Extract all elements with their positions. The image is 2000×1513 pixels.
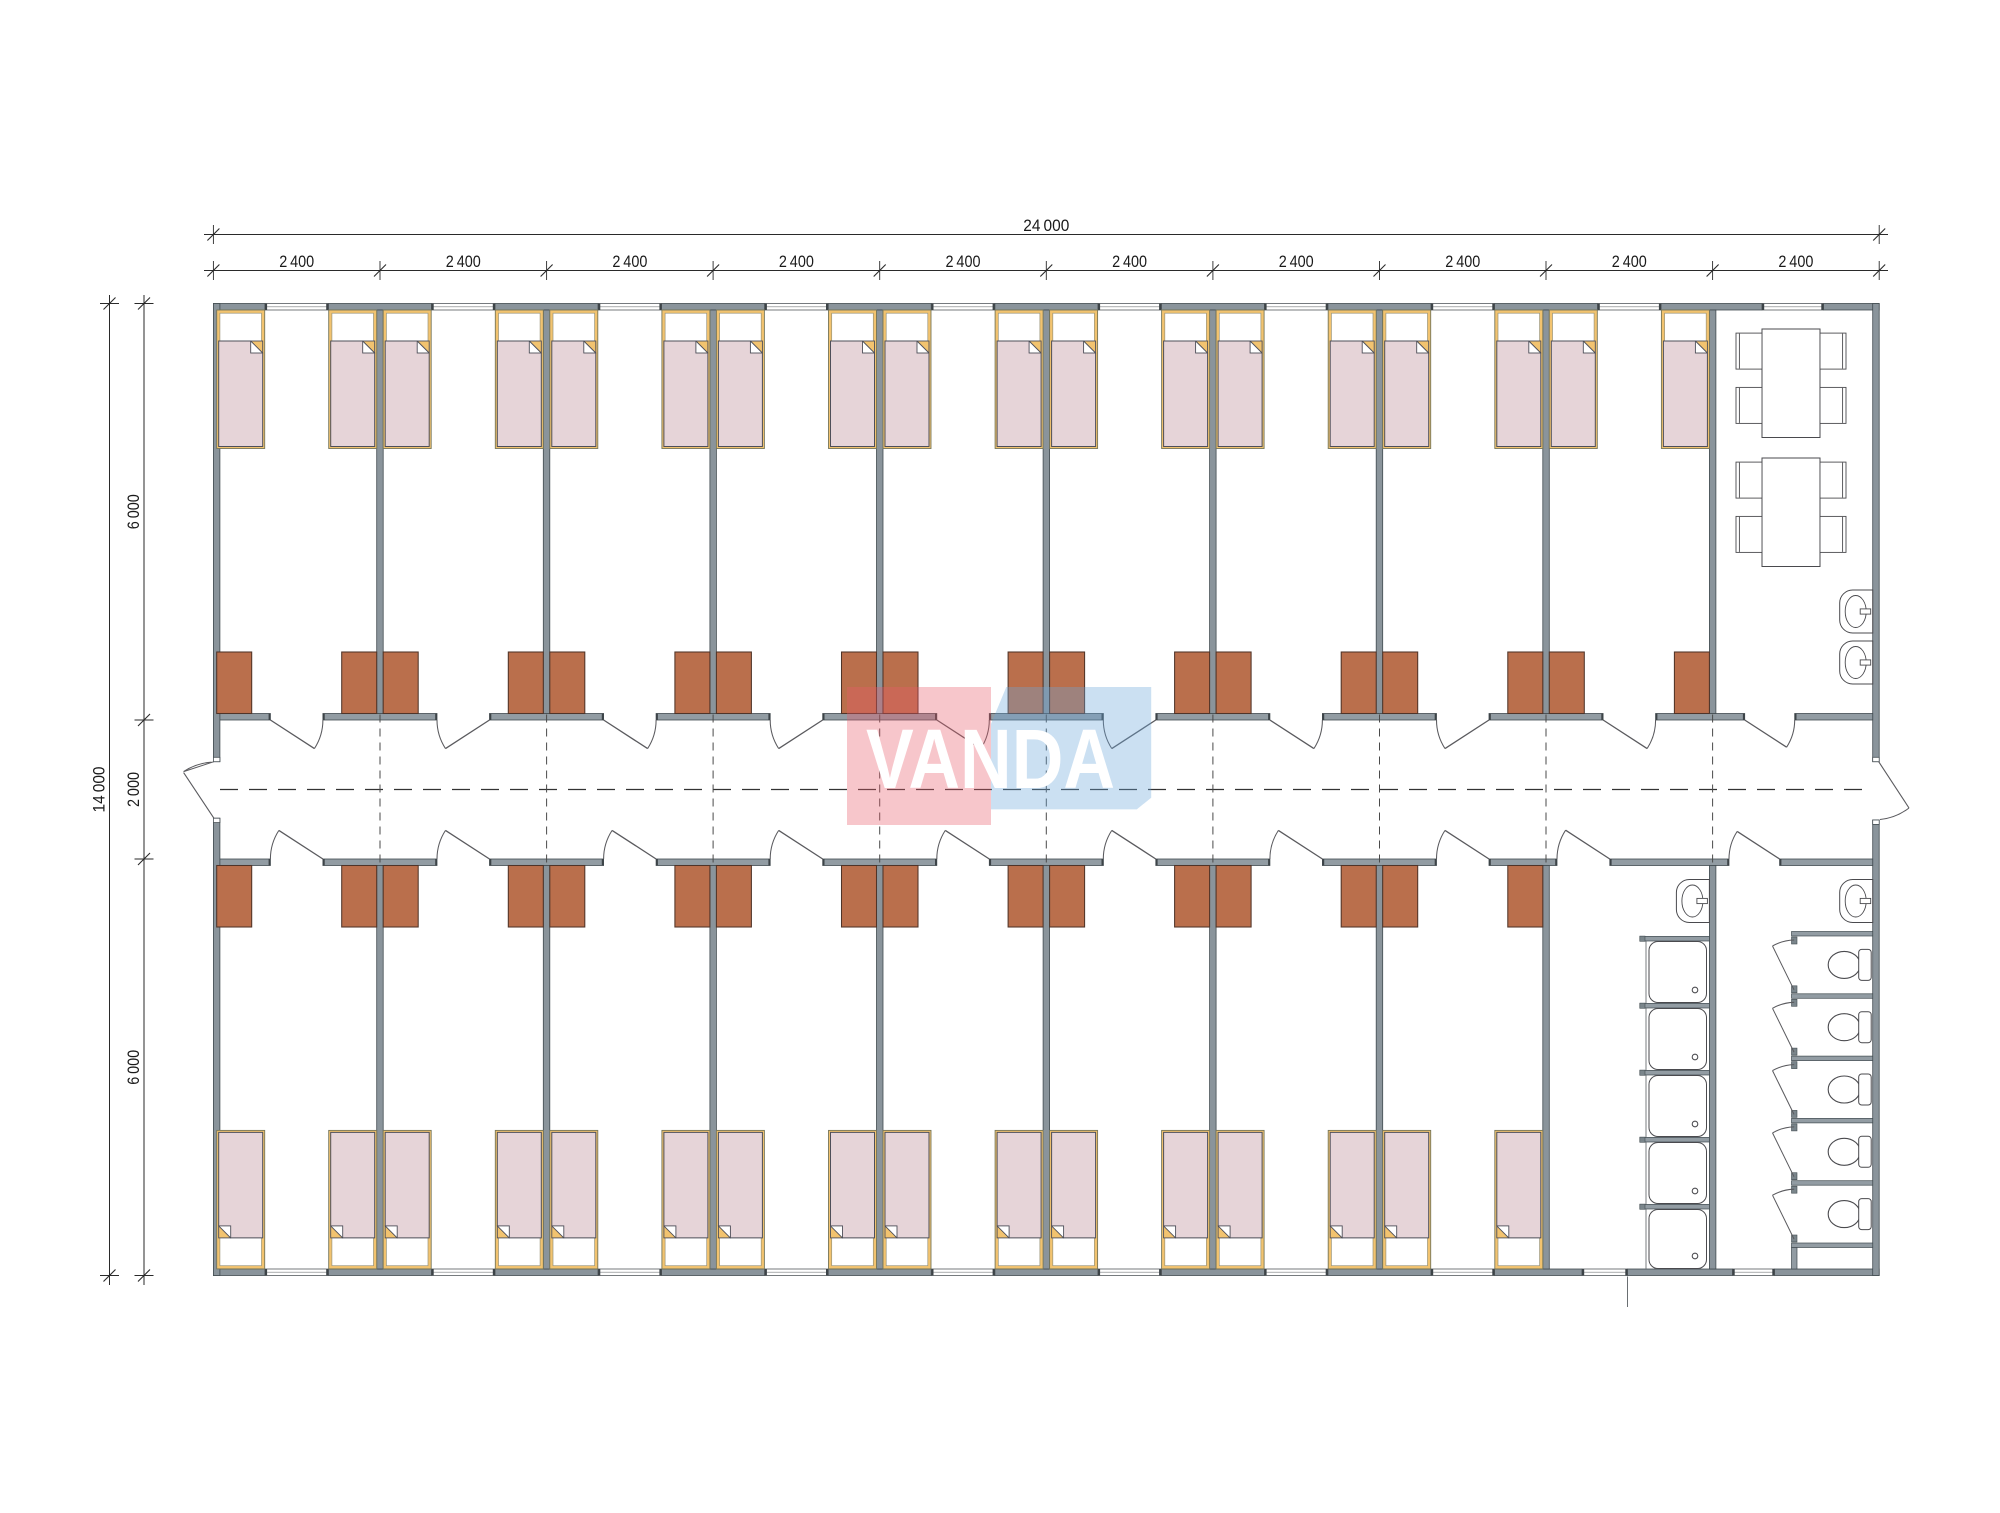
svg-text:VANDA: VANDA bbox=[866, 712, 1115, 806]
svg-text:14 000: 14 000 bbox=[90, 767, 109, 813]
svg-text:6 000: 6 000 bbox=[124, 1050, 143, 1085]
svg-text:2 400: 2 400 bbox=[779, 252, 814, 271]
svg-text:2 400: 2 400 bbox=[1612, 252, 1647, 271]
svg-text:2 400: 2 400 bbox=[446, 252, 481, 271]
svg-text:2 400: 2 400 bbox=[946, 252, 981, 271]
svg-text:6 000: 6 000 bbox=[124, 494, 143, 529]
svg-text:2 400: 2 400 bbox=[279, 252, 314, 271]
svg-text:2 400: 2 400 bbox=[612, 252, 647, 271]
svg-text:2 400: 2 400 bbox=[1279, 252, 1314, 271]
svg-text:2 400: 2 400 bbox=[1778, 252, 1813, 271]
svg-text:2 400: 2 400 bbox=[1112, 252, 1147, 271]
svg-text:2 000: 2 000 bbox=[124, 772, 143, 807]
svg-text:24 000: 24 000 bbox=[1023, 216, 1069, 235]
svg-text:2 400: 2 400 bbox=[1445, 252, 1480, 271]
